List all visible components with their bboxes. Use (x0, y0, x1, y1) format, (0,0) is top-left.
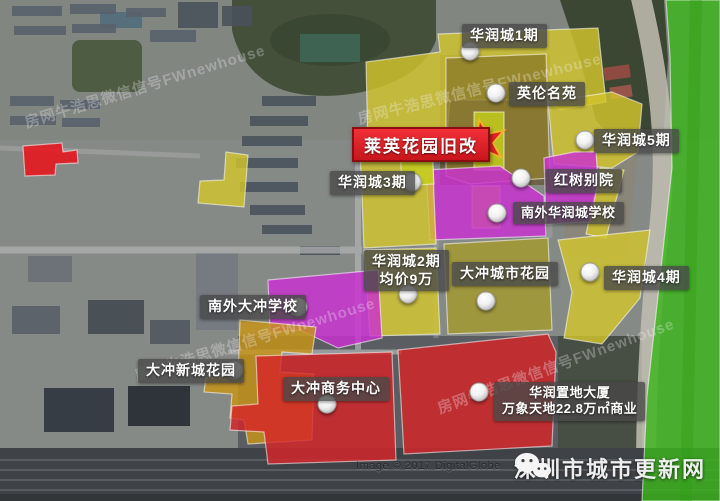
imagery-copyright: Image © 2017 DigitalGlobe (356, 460, 501, 472)
label-dachong-city-garden: 大冲城市花园 (452, 262, 558, 286)
label-line: 华润城2期 (372, 253, 441, 269)
label-huarun-city-2: 华润城2期 均价9万 (364, 250, 449, 291)
label-huarun-city-4: 华润城4期 (604, 266, 689, 290)
label-hongshu-bieyuan: 红树别院 (546, 169, 622, 193)
label-line: 华润置地大厦 (529, 385, 610, 400)
label-nanwai-huaruncheng-school: 南外华润城学校 (513, 202, 624, 224)
wechat-icon (514, 452, 552, 482)
site-branding: 深圳市城市更新网 (514, 452, 706, 484)
label-nanwai-dachong-school: 南外大冲学校 (200, 295, 306, 319)
highlight-star-icon (0, 0, 720, 501)
label-line: 均价9万 (372, 271, 441, 289)
label-line: 万象天地22.8万㎡商业 (502, 401, 637, 417)
label-huarun-city-3: 华润城3期 (330, 171, 415, 195)
highlight-label-laiying: 莱英花园旧改 (352, 127, 490, 162)
satellite-map-image: 房网牛浩思微信信号FWnewhouse 房网牛浩思微信信号FWnewhouse … (0, 0, 720, 501)
label-huarun-city-1: 华润城1期 (462, 24, 547, 48)
label-huarun-zhidi-tower: 华润置地大厦 万象天地22.8万㎡商业 (494, 382, 645, 421)
label-huarun-city-5: 华润城5期 (594, 129, 679, 153)
label-dachong-xincheng-garden: 大冲新城花园 (138, 359, 244, 383)
label-dachong-business-center: 大冲商务中心 (283, 377, 389, 401)
label-yinglun-mingyuan: 英伦名苑 (509, 82, 585, 106)
